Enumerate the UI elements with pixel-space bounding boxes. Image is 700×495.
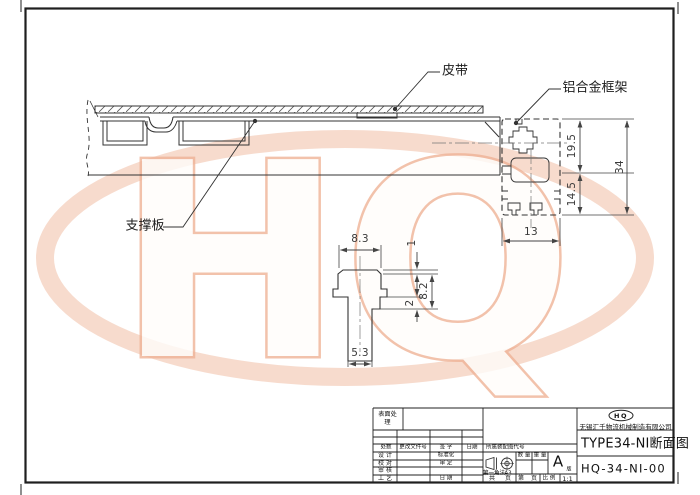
surface-treatment-label: 表面处理 <box>376 411 399 428</box>
pages-unit-b: 页 <box>531 476 537 482</box>
logo-text: HQ <box>614 412 628 420</box>
company-name: 无锡汇千物流机械制造有限公司 <box>579 425 671 432</box>
dim-34: 34 <box>615 160 626 174</box>
belt-section <box>90 101 483 117</box>
page-label: 第 <box>518 476 524 482</box>
company-logo: HQ <box>609 410 633 420</box>
scale-label: 比 例 <box>543 476 556 482</box>
detail-view <box>333 245 438 367</box>
version-letter: A <box>553 455 563 470</box>
dim-8-3: 8.3 <box>351 234 369 245</box>
process-label: 工 艺 <box>378 476 392 482</box>
dim-5-3: 5.3 <box>351 348 369 359</box>
drawing-number: HQ-34-NI-00 <box>581 463 666 475</box>
roles-date-label: 日 期 <box>440 476 453 482</box>
support-plate-label: 支撑板 <box>125 220 164 233</box>
main-section-view <box>87 72 568 228</box>
support-plate-section <box>100 117 500 132</box>
leader-lines <box>163 72 561 227</box>
design-label: 设 计 <box>378 453 392 459</box>
scale-value: 1:1 <box>562 475 572 482</box>
engineering-drawing-sheet: HQ <box>0 0 700 495</box>
dim-1: 1 <box>407 240 418 247</box>
aluminium-frame-label: 铝合金框架 <box>562 82 627 95</box>
dim-13: 13 <box>524 227 538 238</box>
audit-label: 审 核 <box>378 468 392 474</box>
dim-8-2: 8.2 <box>419 282 430 300</box>
date-label: 日期 <box>466 445 477 451</box>
sheet-frame <box>21 0 678 495</box>
pages-total-label: 共 <box>489 476 495 482</box>
standardization-label: 标准化 <box>438 453 455 459</box>
dim-14-5: 14.5 <box>567 182 578 207</box>
signature-label: 签 字 <box>440 445 453 451</box>
dim-2: 2 <box>405 300 416 307</box>
quantity-label: 数 量 <box>518 453 531 459</box>
pages-unit-a: 页 <box>505 476 511 482</box>
drawing-title: TYPE34-NI断面图 <box>581 438 689 451</box>
belt-label: 皮带 <box>442 65 468 78</box>
assembly-code-label: 所属装配图代号 <box>486 445 525 451</box>
dim-19-5: 19.5 <box>567 134 578 159</box>
check-label: 校 对 <box>378 461 392 467</box>
weight-label: 重 量 <box>534 453 547 459</box>
drawing-geometry: HQ <box>0 0 700 495</box>
version-suffix: 版 <box>566 468 571 473</box>
projection-symbol <box>486 457 514 471</box>
change-count-label: 处数 <box>380 445 391 451</box>
approve-label: 审 定 <box>440 461 453 467</box>
change-doc-label: 更改文件号 <box>399 445 427 451</box>
